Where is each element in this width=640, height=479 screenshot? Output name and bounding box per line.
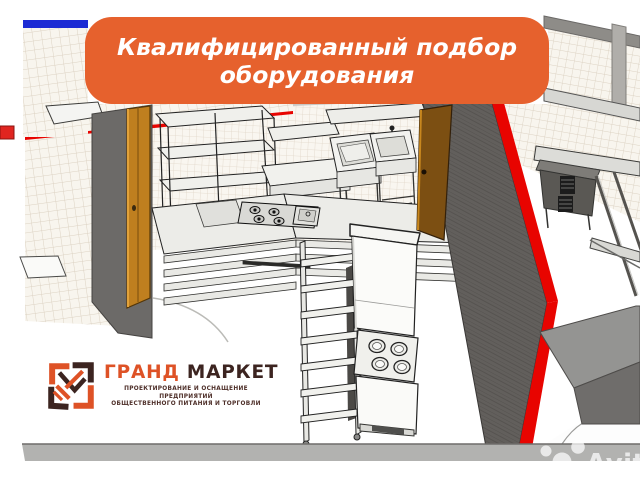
avito-dot-tiny — [547, 468, 555, 476]
avito-watermark-text: Avito — [586, 449, 640, 479]
cutting-board — [196, 200, 244, 227]
avito-dot-large — [553, 453, 572, 472]
logo-title: ГРАНД МАРКЕТ — [104, 362, 268, 384]
avito-dot-small — [541, 446, 552, 457]
logo-subtitle: ПРОЕКТИРОВАНИЕ И ОСНАЩЕНИЕ ПРЕДПРИЯТИЙ О… — [104, 386, 268, 409]
promo-banner: Квалифицированный подбор оборудования — [85, 17, 549, 104]
blue-strip — [23, 20, 88, 28]
wall-pipe — [612, 24, 626, 112]
ad-image: Avito Квалифицированный подбор оборудова… — [0, 0, 640, 479]
banner-line-2: оборудования — [220, 61, 414, 89]
red-sign — [0, 126, 14, 139]
logo-mark-icon — [48, 362, 94, 410]
wall-vent — [20, 256, 66, 278]
avito-dot-medium — [571, 440, 585, 454]
banner-line-1: Квалифицированный подбор — [117, 33, 517, 61]
logo-subtitle-line-2: ОБЩЕСТВЕННОГО ПИТАНИЯ И ТОРГОВЛИ — [104, 401, 268, 409]
gas-range — [238, 202, 320, 228]
door-handle — [422, 170, 427, 175]
corner-counter — [540, 306, 640, 444]
refrigerated-counter — [536, 160, 600, 230]
logo-subtitle-line-1: ПРОЕКТИРОВАНИЕ И ОСНАЩЕНИЕ ПРЕДПРИЯТИЙ — [104, 386, 268, 401]
left-partition-door — [127, 106, 150, 308]
company-logo: ГРАНД МАРКЕТ ПРОЕКТИРОВАНИЕ И ОСНАЩЕНИЕ … — [48, 362, 268, 410]
door-handle — [132, 205, 136, 211]
soup-kettle-unit — [350, 224, 420, 436]
